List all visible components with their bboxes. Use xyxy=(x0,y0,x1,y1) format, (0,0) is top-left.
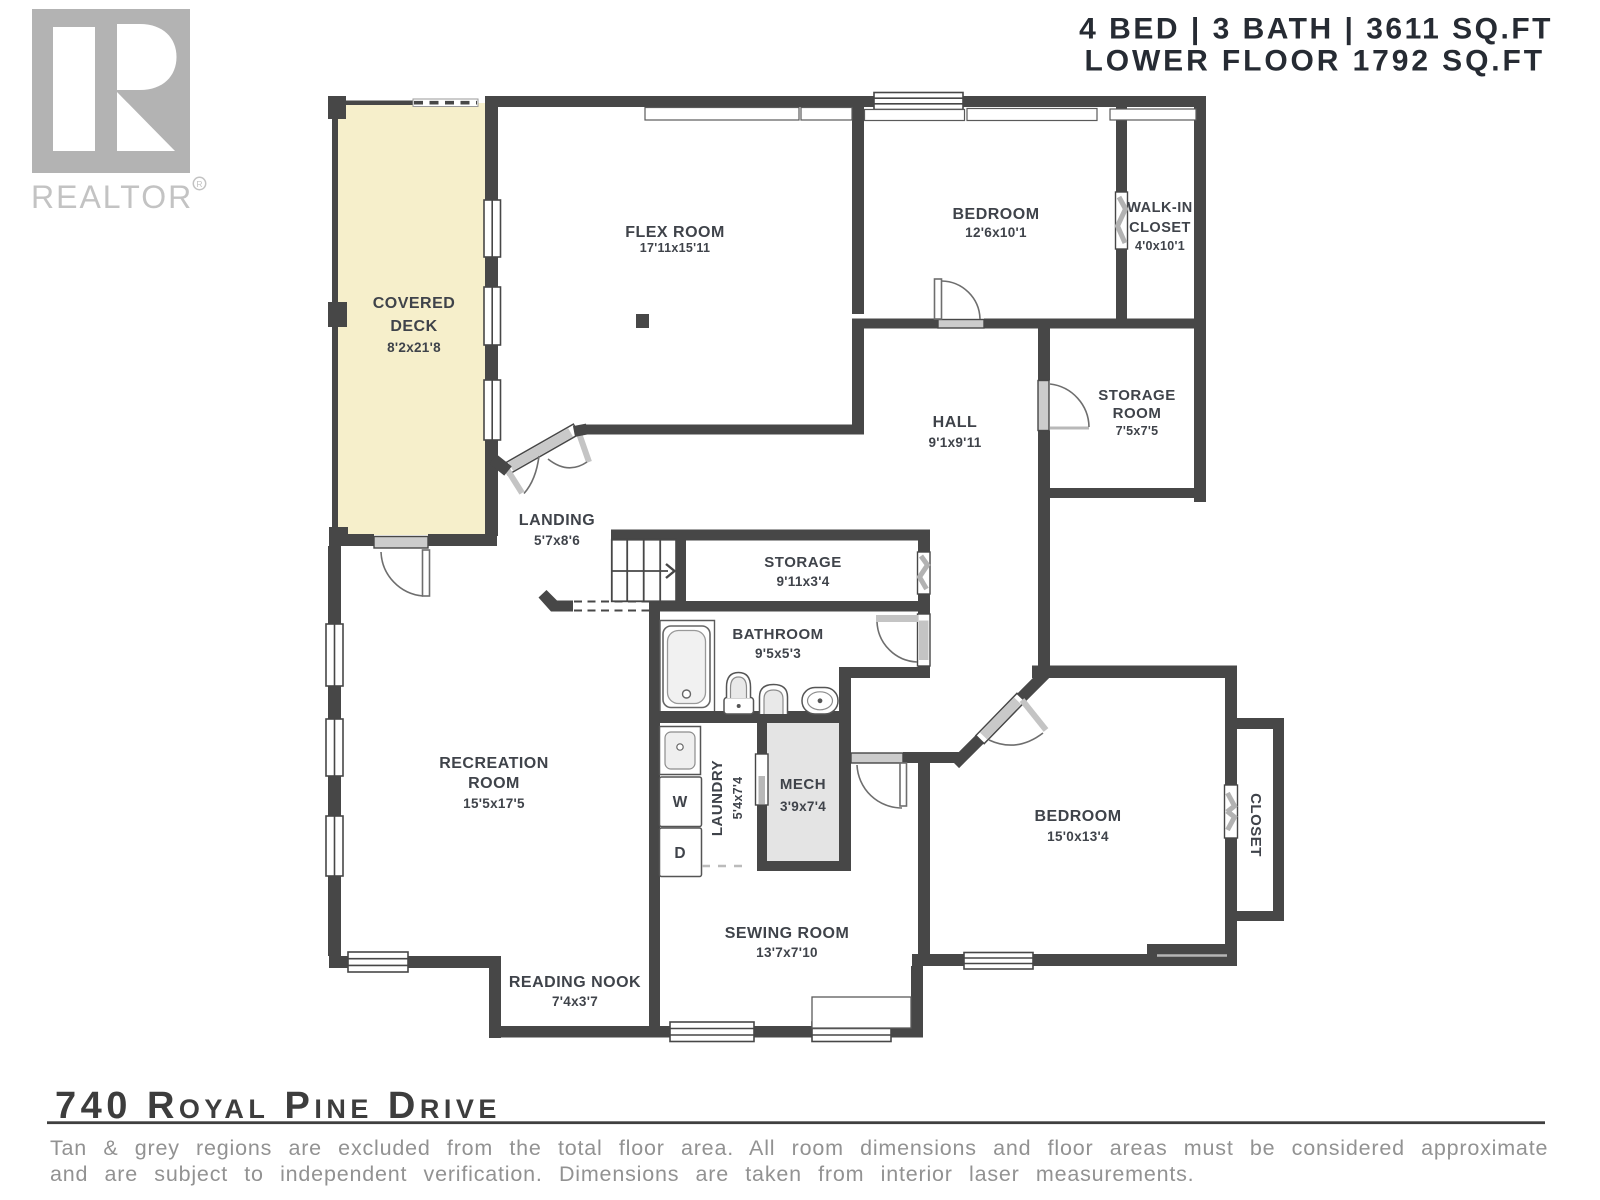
svg-text:15'0x13'4: 15'0x13'4 xyxy=(1047,829,1109,844)
svg-text:STORAGE: STORAGE xyxy=(764,554,841,571)
svg-text:READING NOOK: READING NOOK xyxy=(509,974,641,991)
svg-text:R: R xyxy=(196,179,202,189)
svg-text:12'6x10'1: 12'6x10'1 xyxy=(965,225,1027,240)
svg-text:and are subject to independent: and are subject to independent verificat… xyxy=(50,1162,1194,1186)
svg-text:SEWING ROOM: SEWING ROOM xyxy=(725,925,850,942)
svg-text:WALK-IN: WALK-IN xyxy=(1127,200,1193,216)
svg-text:5'7x8'6: 5'7x8'6 xyxy=(534,533,580,548)
svg-text:CLOSET: CLOSET xyxy=(1247,793,1264,857)
svg-text:COVERED: COVERED xyxy=(373,295,456,312)
svg-text:REALTOR: REALTOR xyxy=(31,179,193,215)
svg-text:D: D xyxy=(674,845,685,862)
svg-text:7'4x3'7: 7'4x3'7 xyxy=(552,994,598,1009)
svg-text:LANDING: LANDING xyxy=(519,512,595,529)
svg-text:4 BED | 3 BATH | 3611 SQ.FT: 4 BED | 3 BATH | 3611 SQ.FT xyxy=(1079,13,1553,46)
svg-text:Tan & grey regions are exclude: Tan & grey regions are excluded from the… xyxy=(50,1136,1548,1160)
svg-text:ROOM: ROOM xyxy=(468,775,520,792)
svg-text:DECK: DECK xyxy=(390,318,437,335)
svg-text:17'11x15'11: 17'11x15'11 xyxy=(640,241,710,255)
svg-text:HALL: HALL xyxy=(933,414,978,431)
svg-text:9'5x5'3: 9'5x5'3 xyxy=(755,646,801,661)
svg-text:3'9x7'4: 3'9x7'4 xyxy=(780,799,826,814)
svg-text:W: W xyxy=(673,794,688,811)
svg-text:9'1x9'11: 9'1x9'11 xyxy=(928,435,981,450)
svg-text:LOWER FLOOR 1792 SQ.FT: LOWER FLOOR 1792 SQ.FT xyxy=(1084,45,1545,78)
svg-text:FLEX ROOM: FLEX ROOM xyxy=(625,224,725,241)
svg-text:8'2x21'8: 8'2x21'8 xyxy=(387,340,441,355)
svg-text:15'5x17'5: 15'5x17'5 xyxy=(463,796,525,811)
svg-text:5'4x7'4: 5'4x7'4 xyxy=(731,777,745,820)
svg-text:CLOSET: CLOSET xyxy=(1129,220,1191,236)
svg-text:9'11x3'4: 9'11x3'4 xyxy=(776,574,829,589)
svg-text:740 Royal Pine Drive: 740 Royal Pine Drive xyxy=(55,1085,501,1127)
svg-text:BATHROOM: BATHROOM xyxy=(732,626,823,643)
svg-text:STORAGE: STORAGE xyxy=(1098,387,1175,404)
svg-text:13'7x7'10: 13'7x7'10 xyxy=(756,945,818,960)
svg-text:MECH: MECH xyxy=(780,776,826,793)
svg-text:7'5x7'5: 7'5x7'5 xyxy=(1116,424,1159,438)
svg-text:LAUNDRY: LAUNDRY xyxy=(709,760,726,836)
svg-text:BEDROOM: BEDROOM xyxy=(1034,808,1121,825)
svg-text:RECREATION: RECREATION xyxy=(439,755,549,772)
svg-text:ROOM: ROOM xyxy=(1113,405,1162,422)
svg-text:BEDROOM: BEDROOM xyxy=(952,206,1039,223)
svg-text:4'0x10'1: 4'0x10'1 xyxy=(1135,239,1185,253)
